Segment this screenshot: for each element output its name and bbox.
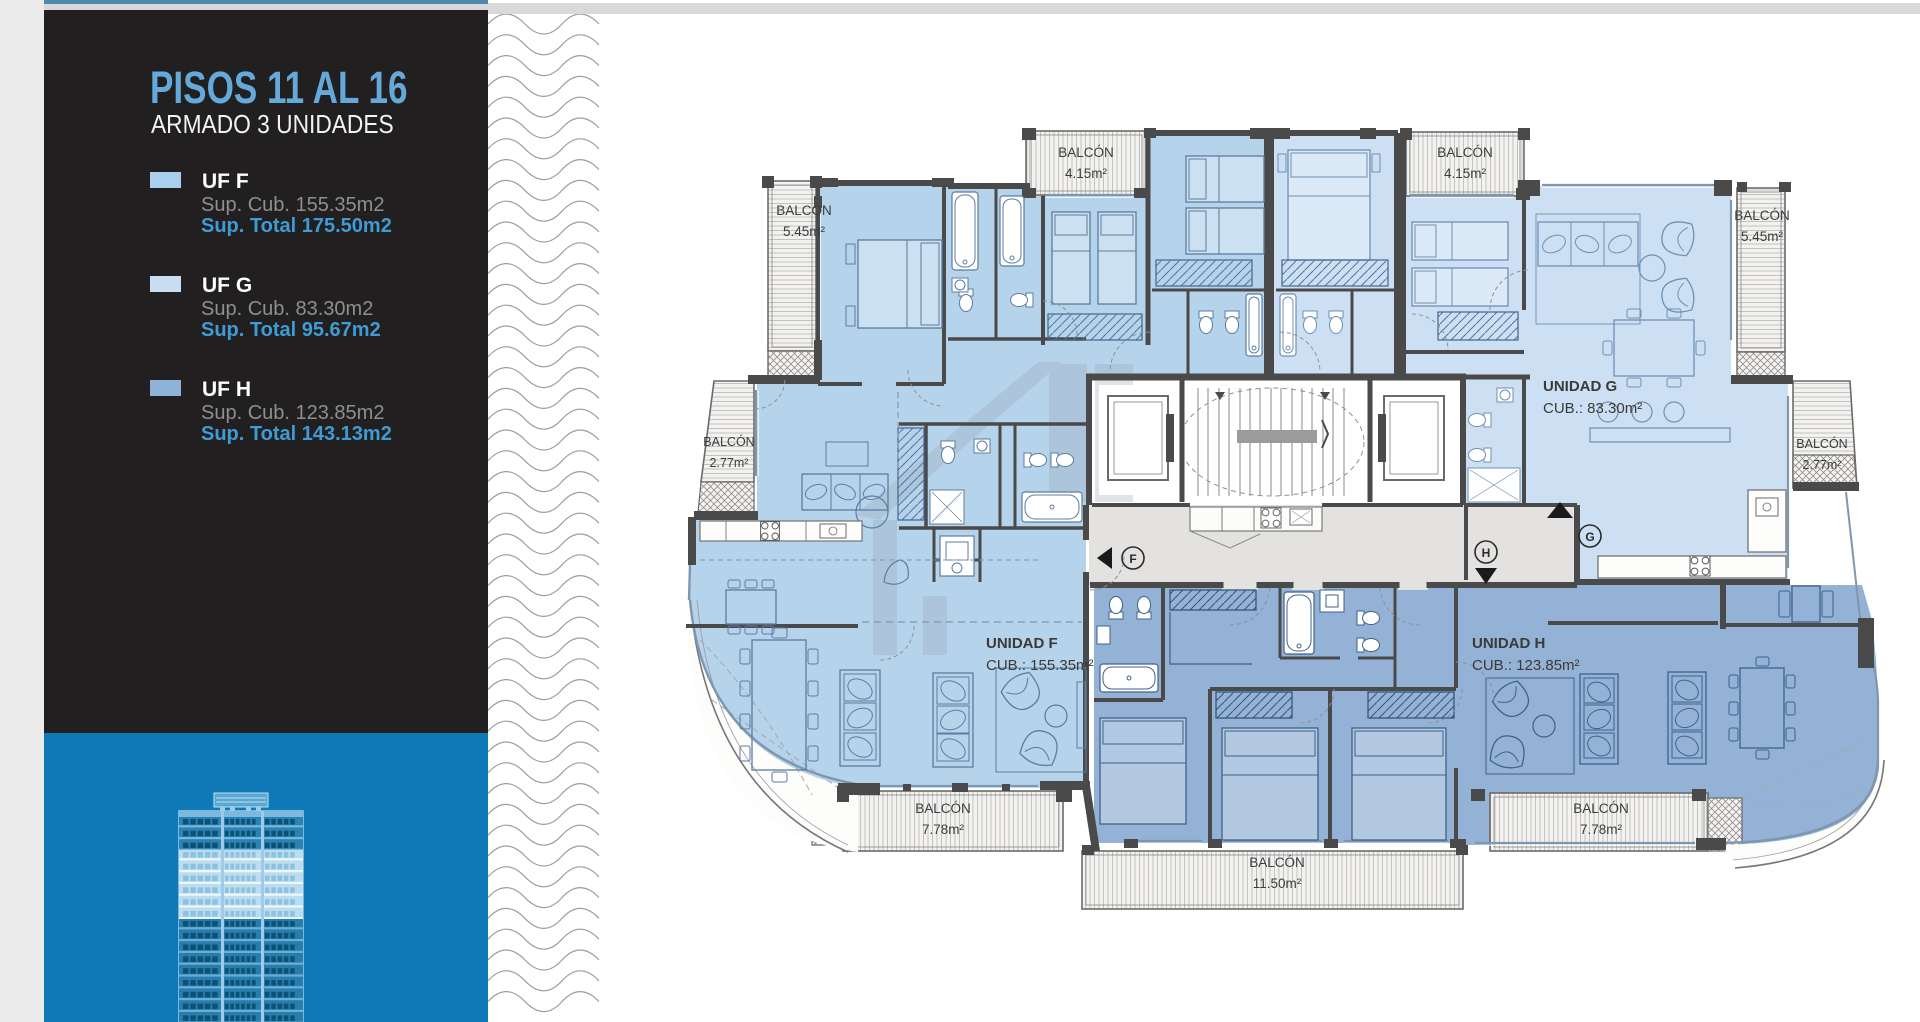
svg-text:BALCÓN: BALCÓN (1734, 208, 1790, 223)
svg-text:7.78m²: 7.78m² (922, 822, 965, 837)
svg-text:CUB.: 123.85m²: CUB.: 123.85m² (1472, 657, 1580, 674)
svg-text:BALCÓN: BALCÓN (1573, 801, 1629, 816)
svg-text:H: H (1482, 546, 1491, 560)
svg-text:2.77m²: 2.77m² (1803, 458, 1842, 472)
svg-text:4.15m²: 4.15m² (1065, 166, 1108, 181)
svg-text:BALCÓN: BALCÓN (703, 434, 754, 449)
svg-text:BALCÓN: BALCÓN (776, 203, 832, 218)
svg-text:CUB.: 155.35m²: CUB.: 155.35m² (986, 657, 1094, 674)
svg-text:BALCÓN: BALCÓN (915, 801, 971, 816)
svg-text:BALCÓN: BALCÓN (1058, 145, 1114, 160)
svg-text:BALCÓN: BALCÓN (1249, 855, 1305, 870)
svg-text:UNIDAD F: UNIDAD F (986, 635, 1058, 652)
svg-text:5.45m²: 5.45m² (1741, 229, 1784, 244)
svg-text:CUB.: 83.30m²: CUB.: 83.30m² (1543, 400, 1642, 417)
svg-text:UNIDAD G: UNIDAD G (1543, 378, 1617, 395)
svg-text:F: F (1129, 552, 1136, 566)
svg-text:11.50m²: 11.50m² (1253, 876, 1302, 891)
svg-text:5.45m²: 5.45m² (783, 224, 826, 239)
svg-text:BALCÓN: BALCÓN (1796, 436, 1847, 451)
svg-text:2.77m²: 2.77m² (710, 456, 749, 470)
svg-text:7.78m²: 7.78m² (1580, 822, 1623, 837)
svg-text:UNIDAD H: UNIDAD H (1472, 635, 1545, 652)
svg-text:BALCÓN: BALCÓN (1437, 145, 1493, 160)
svg-text:4.15m²: 4.15m² (1444, 166, 1487, 181)
svg-text:G: G (1585, 530, 1594, 544)
